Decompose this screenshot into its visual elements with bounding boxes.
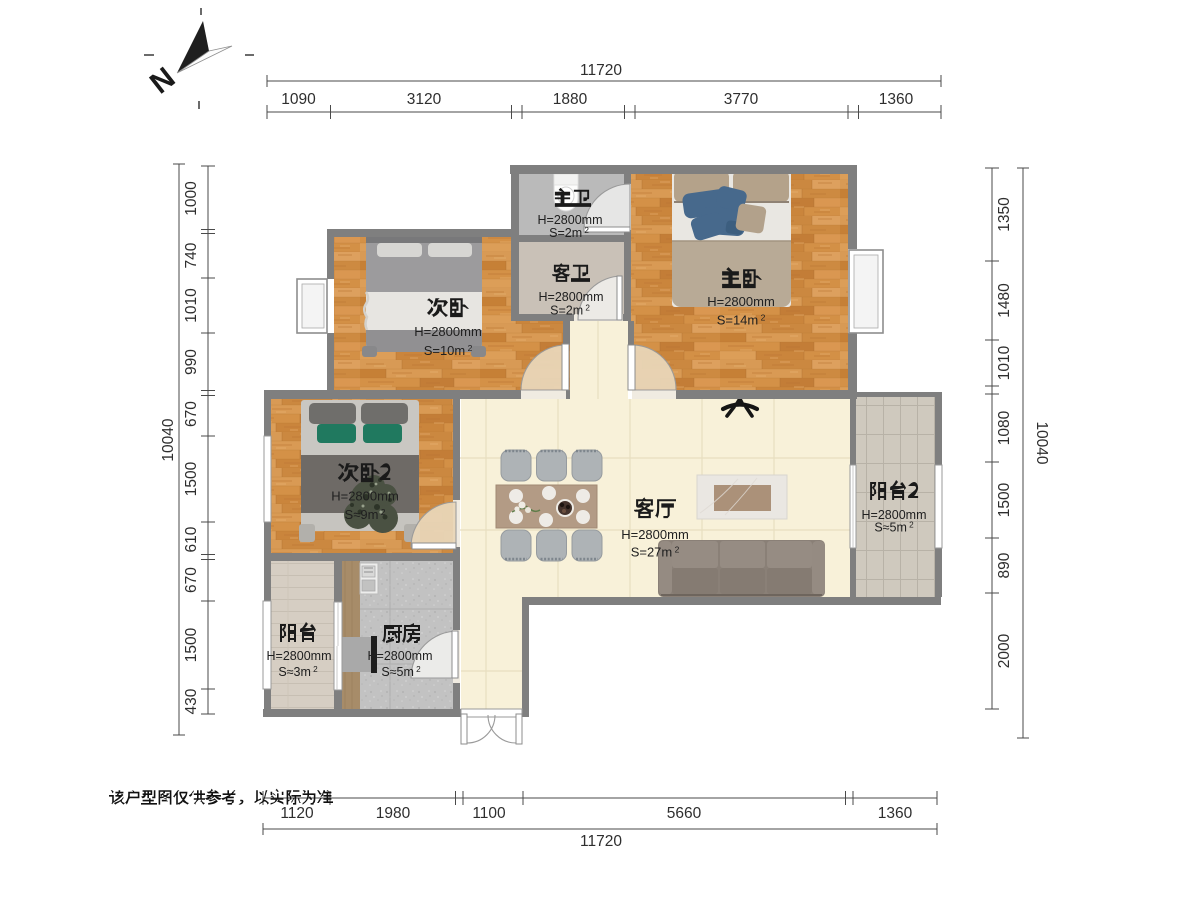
svg-text:1360: 1360 bbox=[878, 805, 913, 822]
svg-text:990: 990 bbox=[183, 349, 200, 375]
svg-text:2000: 2000 bbox=[996, 633, 1013, 668]
svg-text:S=10m2: S=10m2 bbox=[424, 343, 473, 358]
svg-text:11720: 11720 bbox=[580, 62, 622, 79]
svg-text:H=2800mm: H=2800mm bbox=[414, 324, 482, 339]
svg-text:1010: 1010 bbox=[996, 345, 1013, 380]
svg-text:1090: 1090 bbox=[281, 91, 316, 108]
svg-text:11720: 11720 bbox=[580, 833, 622, 850]
svg-text:1480: 1480 bbox=[996, 283, 1013, 318]
svg-text:H=2800mm: H=2800mm bbox=[539, 290, 604, 304]
svg-text:430: 430 bbox=[183, 688, 200, 714]
svg-text:1980: 1980 bbox=[376, 805, 411, 822]
svg-text:890: 890 bbox=[996, 552, 1013, 578]
svg-text:H=2800mm: H=2800mm bbox=[267, 649, 332, 663]
svg-text:1010: 1010 bbox=[183, 288, 200, 323]
svg-text:670: 670 bbox=[183, 567, 200, 593]
svg-text:H=2800mm: H=2800mm bbox=[707, 294, 775, 309]
svg-text:3120: 3120 bbox=[407, 91, 442, 108]
svg-text:1500: 1500 bbox=[183, 627, 200, 662]
svg-text:1120: 1120 bbox=[280, 805, 314, 822]
svg-text:1880: 1880 bbox=[553, 91, 588, 108]
svg-text:740: 740 bbox=[183, 242, 200, 268]
svg-text:10040: 10040 bbox=[160, 418, 177, 461]
svg-text:1500: 1500 bbox=[183, 461, 200, 496]
svg-text:5660: 5660 bbox=[667, 805, 702, 822]
svg-text:1080: 1080 bbox=[996, 410, 1013, 445]
svg-text:H=2800mm: H=2800mm bbox=[538, 213, 603, 227]
svg-text:3770: 3770 bbox=[724, 91, 759, 108]
svg-text:670: 670 bbox=[183, 401, 200, 427]
svg-text:1100: 1100 bbox=[472, 805, 506, 822]
svg-text:1500: 1500 bbox=[996, 482, 1013, 517]
svg-text:S=14m2: S=14m2 bbox=[717, 312, 766, 327]
svg-text:1000: 1000 bbox=[183, 181, 200, 216]
svg-text:H=2800mm: H=2800mm bbox=[621, 527, 689, 542]
svg-text:H=2800mm: H=2800mm bbox=[331, 489, 399, 504]
svg-text:1360: 1360 bbox=[879, 91, 914, 108]
svg-text:610: 610 bbox=[183, 526, 200, 552]
svg-text:H=2800mm: H=2800mm bbox=[368, 649, 433, 663]
svg-text:10040: 10040 bbox=[1033, 421, 1050, 464]
svg-text:1350: 1350 bbox=[996, 197, 1013, 232]
svg-text:S=27m2: S=27m2 bbox=[631, 544, 680, 559]
